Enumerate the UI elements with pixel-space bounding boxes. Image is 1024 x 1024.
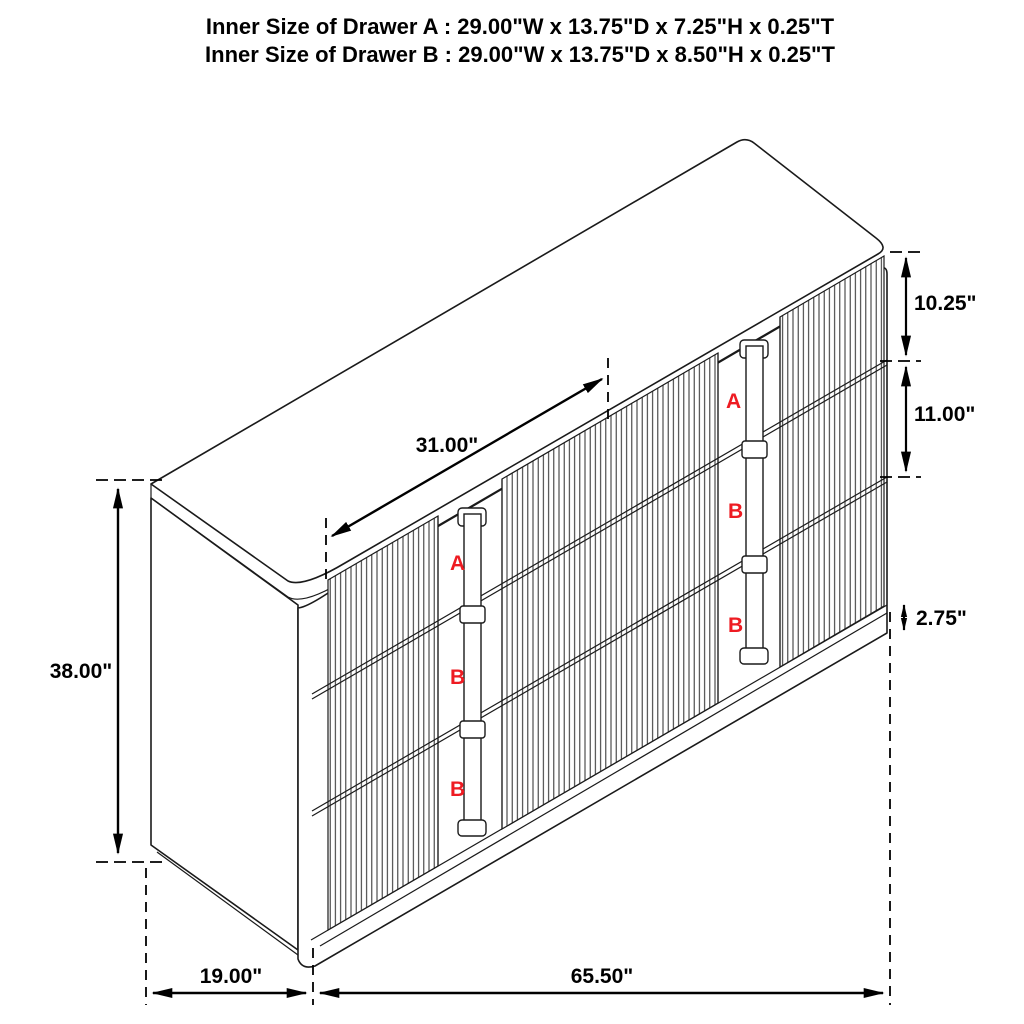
dimension-label-total-height: 38.00" (50, 660, 113, 683)
fluted-panel-left (328, 516, 438, 930)
cabinet-drawing: A B B A B B (151, 140, 887, 967)
title-drawer-a-inner-size: Inner Size of Drawer A : 29.00"W x 13.75… (206, 14, 835, 39)
drawer-label-right-a: A (726, 390, 741, 413)
dimension-label-depth: 19.00" (200, 965, 263, 988)
dimension-label-total-width: 65.50" (571, 965, 634, 988)
drawer-label-right-b1: B (728, 500, 743, 523)
dimension-lower-drawer-height: 11.00" (880, 367, 975, 477)
dimension-base-height: 2.75" (904, 605, 967, 630)
dimension-top-drawer-height: 10.25" (880, 252, 977, 361)
dimension-label-lower-drawer-height: 11.00" (914, 403, 975, 426)
diagram-canvas: A B B A B B 31.00" 38.00" 10.25" 11.00" (0, 0, 1024, 1024)
drawer-label-left-a: A (450, 552, 465, 575)
dimension-total-height: 38.00" (50, 480, 163, 862)
drawer-label-left-b2: B (450, 778, 465, 801)
furniture-dimension-diagram: A B B A B B 31.00" 38.00" 10.25" 11.00" (0, 0, 1024, 1024)
drawer-label-right-b2: B (728, 614, 743, 637)
fluted-panel-right (780, 256, 884, 667)
title-drawer-b-inner-size: Inner Size of Drawer B : 29.00"W x 13.75… (205, 42, 835, 67)
dimension-label-top-drawer-height: 10.25" (914, 292, 977, 315)
dimension-label-base-height: 2.75" (916, 607, 967, 630)
drawer-label-left-b1: B (450, 666, 465, 689)
dimension-label-drawer-width: 31.00" (416, 434, 479, 457)
